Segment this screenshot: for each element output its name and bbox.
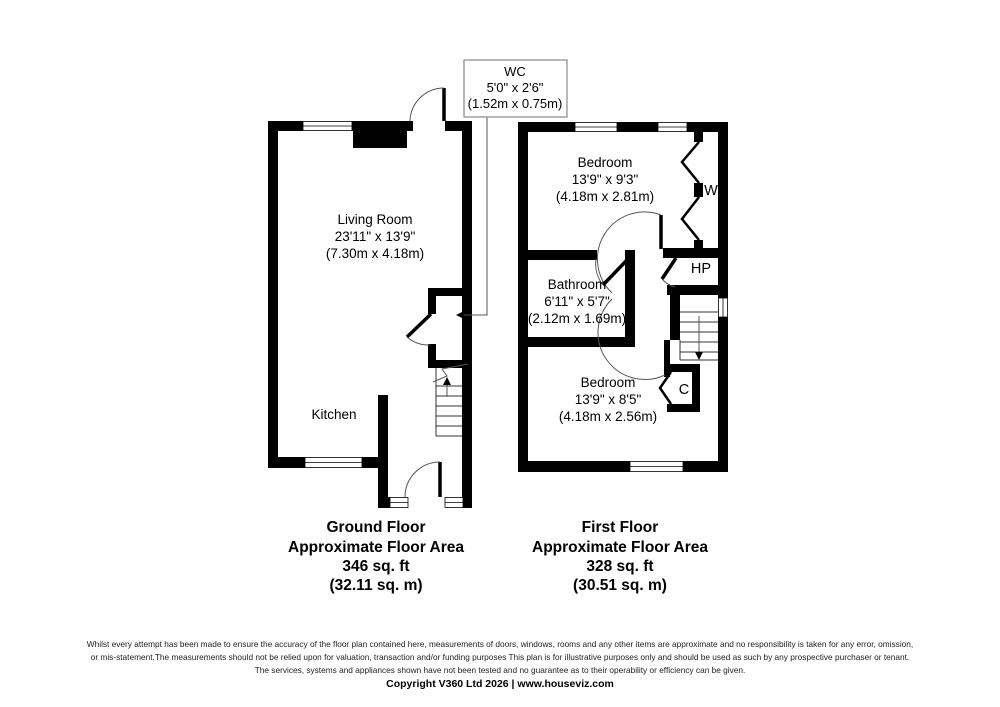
first-floor-caption: First Floor Approximate Floor Area 328 s… bbox=[532, 519, 708, 594]
ground-room-labels: Living Room 23'11" x 13'9" (7.30m x 4.18… bbox=[311, 212, 424, 422]
disclaimer-line-3: The services, systems and appliances sho… bbox=[255, 665, 746, 675]
ground-area-m: (32.11 sq. m) bbox=[329, 577, 422, 594]
ground-floor-caption: Ground Floor Approximate Floor Area 346 … bbox=[288, 519, 464, 594]
disclaimer-line-2: or mis-statement.The measurements should… bbox=[91, 652, 909, 662]
ground-subtitle: Approximate Floor Area bbox=[288, 539, 464, 556]
wc-callout-dim-ft: 5'0" x 2'6" bbox=[487, 80, 544, 95]
hp-door-leaf bbox=[662, 258, 676, 279]
floor-plan-page: WC 5'0" x 2'6" (1.52m x 0.75m) Living Ro… bbox=[0, 0, 1000, 707]
ground-area-ft: 346 sq. ft bbox=[342, 558, 409, 575]
wc-callout-dim-m: (1.52m x 0.75m) bbox=[468, 96, 563, 111]
living-room-dim-ft: 23'11" x 13'9" bbox=[335, 229, 416, 244]
bedroom2-name: Bedroom bbox=[581, 375, 636, 390]
floor-plan-drawing: WC 5'0" x 2'6" (1.52m x 0.75m) Living Ro… bbox=[0, 0, 1000, 707]
bathroom-dim-m: (2.12m x 1.69m) bbox=[528, 311, 626, 326]
first-title: First Floor bbox=[582, 519, 659, 536]
ground-title: Ground Floor bbox=[326, 519, 425, 536]
wc-door-arc bbox=[407, 337, 430, 345]
bedroom2-dim-m: (4.18m x 2.56m) bbox=[559, 409, 657, 424]
front-door-arc bbox=[405, 462, 440, 497]
first-subtitle: Approximate Floor Area bbox=[532, 539, 708, 556]
hp-label: HP bbox=[691, 261, 711, 277]
copyright-line: Copyright V360 Ltd 2026 | www.houseviz.c… bbox=[386, 678, 614, 690]
ground-walls bbox=[268, 121, 472, 508]
bedroom2-dim-ft: 13'9" x 8'5" bbox=[575, 392, 642, 407]
bedroom1-dim-m: (4.18m x 2.81m) bbox=[556, 189, 654, 204]
disclaimer-line-1: Whilst every attempt has been made to en… bbox=[87, 639, 913, 649]
closet-label: C bbox=[679, 382, 689, 398]
stair-treads bbox=[436, 368, 462, 436]
living-room-dim-m: (7.30m x 4.18m) bbox=[326, 246, 424, 261]
bathroom-dim-ft: 6'11" x 5'7" bbox=[544, 294, 610, 309]
bedroom1-dim-ft: 13'9" x 9'3" bbox=[572, 172, 639, 187]
kitchen-name: Kitchen bbox=[311, 407, 356, 422]
patio-door-arc bbox=[410, 88, 444, 121]
first-area-m: (30.51 sq. m) bbox=[573, 577, 667, 594]
bathroom-door-leaf bbox=[603, 260, 627, 285]
wc-callout-name: WC bbox=[504, 64, 526, 79]
wardrobe-label: W bbox=[704, 183, 718, 199]
living-room-name: Living Room bbox=[337, 212, 412, 227]
bedroom1-name: Bedroom bbox=[578, 155, 633, 170]
wc-leader-arrow-head bbox=[456, 311, 464, 319]
footer-disclaimer: Whilst every attempt has been made to en… bbox=[87, 639, 913, 690]
bathroom-name: Bathroom bbox=[548, 277, 607, 292]
first-floor-plan: Bedroom 13'9" x 9'3" (4.18m x 2.81m) Bat… bbox=[518, 122, 728, 472]
stair-down-arrow-head bbox=[695, 352, 703, 360]
first-stairs bbox=[680, 312, 718, 360]
stair-up-arrow-head bbox=[443, 377, 451, 385]
first-area-ft: 328 sq. ft bbox=[586, 558, 653, 575]
wc-door-leaf bbox=[407, 314, 431, 337]
